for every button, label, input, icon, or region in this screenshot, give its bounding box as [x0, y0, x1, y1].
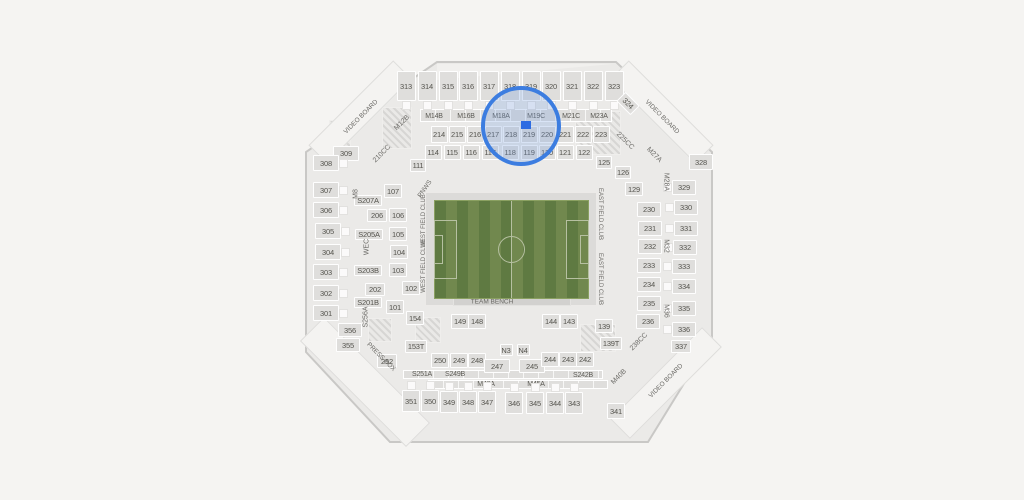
section-247[interactable]: 247 [484, 359, 510, 373]
section-244[interactable]: 244 [541, 352, 559, 367]
section-341[interactable]: 341 [607, 403, 625, 419]
section-S203B[interactable]: S203B [354, 265, 382, 276]
section-313[interactable]: 313 [397, 71, 416, 101]
section-315[interactable]: 315 [439, 71, 458, 101]
section-220[interactable]: 220 [539, 126, 556, 143]
section-101[interactable]: 101 [386, 300, 404, 314]
m36-label: M36 [663, 304, 670, 318]
m8-label: M8 [353, 189, 360, 199]
section-308[interactable]: 308 [313, 155, 339, 171]
section-336[interactable]: 336 [672, 322, 696, 337]
section-343[interactable]: 343 [565, 392, 583, 414]
section-M19C[interactable]: M19C [522, 111, 550, 122]
section-M21C[interactable]: M21C [557, 111, 585, 122]
section-S249B[interactable]: S249B [440, 370, 470, 379]
section-348[interactable]: 348 [459, 391, 477, 413]
section-M18A[interactable]: M18A [487, 111, 515, 122]
section-M16B[interactable]: M16B [452, 111, 480, 122]
section-331[interactable]: 331 [674, 221, 698, 236]
section-304[interactable]: 304 [315, 244, 341, 260]
stadium-seat-map: 313314315316317318319320321322323324M14B… [0, 0, 1024, 500]
section-351[interactable]: 351 [402, 390, 420, 412]
section-350[interactable]: 350 [421, 390, 439, 412]
section-218[interactable]: 218 [503, 126, 520, 143]
section-N3[interactable]: N3 [500, 344, 513, 356]
section-319[interactable]: 319 [522, 71, 541, 101]
section-233[interactable]: 233 [637, 258, 661, 273]
section-242[interactable]: 242 [576, 352, 594, 367]
section-318[interactable]: 318 [501, 71, 520, 101]
section-320[interactable]: 320 [542, 71, 561, 101]
section-116[interactable]: 116 [463, 145, 480, 160]
section-221[interactable]: 221 [557, 126, 574, 143]
section-125[interactable]: 125 [596, 156, 612, 169]
section-329[interactable]: 329 [672, 180, 696, 195]
section-215[interactable]: 215 [449, 126, 466, 143]
section-345[interactable]: 345 [526, 392, 544, 414]
m28a-label: M28A [663, 173, 670, 191]
section-355[interactable]: 355 [336, 338, 360, 352]
section-107[interactable]: 107 [384, 184, 402, 198]
hatch-block [368, 318, 392, 342]
section-118[interactable]: 118 [502, 145, 519, 160]
section-111[interactable]: 111 [410, 159, 426, 172]
section-328[interactable]: 328 [689, 154, 713, 170]
section-347[interactable]: 347 [478, 391, 496, 413]
section-S242B[interactable]: S242B [568, 371, 598, 380]
section-349[interactable]: 349 [440, 391, 458, 413]
section-S251A[interactable]: S251A [407, 370, 437, 379]
section-139T[interactable]: 139T [600, 337, 622, 350]
section-103[interactable]: 103 [389, 263, 407, 277]
section-M23A[interactable]: M23A [585, 111, 613, 122]
section-223[interactable]: 223 [593, 126, 610, 143]
section-216[interactable]: 216 [467, 126, 484, 143]
section-231[interactable]: 231 [638, 221, 662, 236]
section-337[interactable]: 337 [671, 340, 691, 353]
field-center-circle [498, 236, 525, 263]
section-250[interactable]: 250 [431, 353, 449, 368]
section-301[interactable]: 301 [313, 305, 339, 321]
section-314[interactable]: 314 [418, 71, 437, 101]
section-144[interactable]: 144 [542, 314, 560, 329]
section-106[interactable]: 106 [389, 208, 407, 222]
wec-label: WEC [364, 239, 371, 255]
section-235[interactable]: 235 [637, 296, 661, 311]
section-M14B[interactable]: M14B [420, 111, 448, 122]
goal-area-right [580, 235, 589, 264]
section-302[interactable]: 302 [313, 285, 339, 301]
section-153T[interactable]: 153T [405, 340, 427, 353]
s256a-label: S256A [363, 306, 370, 327]
section-214[interactable]: 214 [431, 126, 448, 143]
section-344[interactable]: 344 [546, 392, 564, 414]
section-346[interactable]: 346 [505, 392, 523, 414]
section-334[interactable]: 334 [672, 279, 696, 294]
section-305[interactable]: 305 [315, 223, 341, 239]
section-202[interactable]: 202 [365, 283, 385, 296]
section-230[interactable]: 230 [637, 202, 661, 217]
goal-area-left [434, 235, 443, 264]
section-148[interactable]: 148 [468, 314, 486, 329]
section-143[interactable]: 143 [560, 314, 578, 329]
section-119[interactable]: 119 [521, 145, 538, 160]
section-232[interactable]: 232 [638, 239, 662, 254]
section-120[interactable]: 120 [539, 145, 556, 160]
section-222[interactable]: 222 [575, 126, 592, 143]
section-206[interactable]: 206 [367, 209, 387, 222]
section-154[interactable]: 154 [406, 311, 424, 325]
section-102[interactable]: 102 [402, 281, 420, 295]
east-field-club-label: EAST FIELD CLUB [597, 253, 603, 305]
west-field-club-label: WEST FIELD CLUB [421, 239, 427, 293]
section-105[interactable]: 105 [389, 227, 407, 241]
section-117[interactable]: 117 [482, 145, 499, 160]
section-N4[interactable]: N4 [517, 344, 530, 356]
selected-seat-marker[interactable] [521, 121, 531, 129]
section-129[interactable]: 129 [625, 182, 643, 196]
section-104[interactable]: 104 [390, 245, 408, 259]
section-317[interactable]: 317 [480, 71, 499, 101]
east-field-club-label: EAST FIELD CLUB [597, 188, 603, 240]
section-114[interactable]: 114 [425, 145, 442, 160]
section-321[interactable]: 321 [563, 71, 582, 101]
section-234[interactable]: 234 [637, 277, 661, 292]
section-332[interactable]: 332 [673, 240, 697, 255]
section-333[interactable]: 333 [672, 259, 696, 274]
section-306[interactable]: 306 [313, 202, 339, 218]
section-316[interactable]: 316 [459, 71, 478, 101]
section-249[interactable]: 249 [450, 353, 468, 368]
section-139[interactable]: 139 [595, 319, 613, 333]
section-126[interactable]: 126 [615, 166, 631, 179]
section-330[interactable]: 330 [674, 200, 698, 215]
section-335[interactable]: 335 [672, 301, 696, 316]
section-243[interactable]: 243 [559, 352, 577, 367]
section-356[interactable]: 356 [338, 323, 362, 337]
section-307[interactable]: 307 [313, 182, 339, 198]
section-217[interactable]: 217 [485, 126, 502, 143]
section-322[interactable]: 322 [584, 71, 603, 101]
section-303[interactable]: 303 [313, 264, 339, 280]
team-bench-label: TEAM BENCH [471, 299, 514, 306]
section-236[interactable]: 236 [636, 314, 660, 329]
section-122[interactable]: 122 [576, 145, 593, 160]
section-149[interactable]: 149 [451, 314, 469, 329]
soccer-field [434, 200, 589, 299]
section-121[interactable]: 121 [557, 145, 574, 160]
section-115[interactable]: 115 [444, 145, 461, 160]
m32-label: M32 [663, 239, 670, 253]
